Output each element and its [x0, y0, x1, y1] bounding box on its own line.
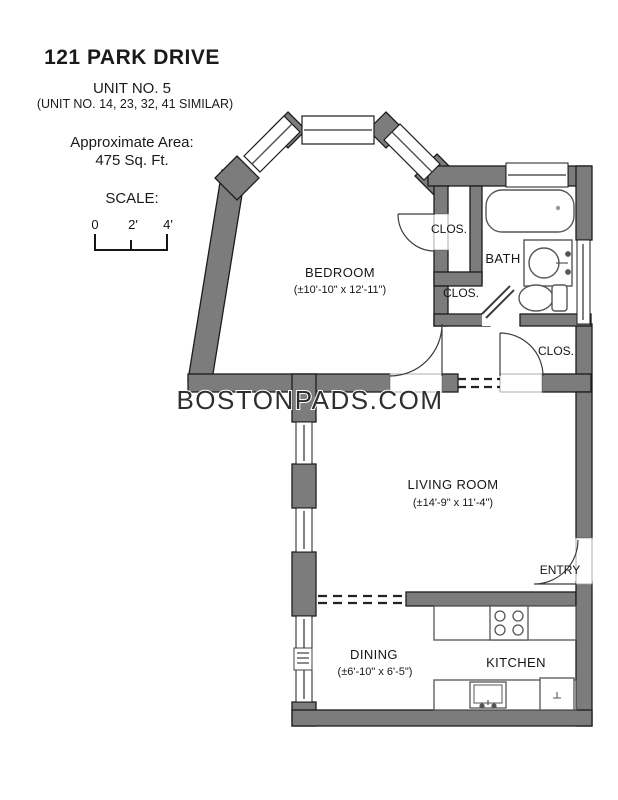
wall-closet-bottom: [542, 374, 591, 392]
closet-upper-door-arc: [398, 214, 435, 251]
wall-bottom: [292, 710, 592, 726]
closet-lower-door-arc: [500, 333, 543, 376]
dashed-opening-hall: [458, 379, 500, 387]
wall-living-left-b: [292, 464, 316, 508]
room-label-dining: DINING: [350, 647, 398, 662]
entry-door-arc: [534, 540, 578, 584]
bathtub-icon: [486, 190, 574, 232]
kitchen-sink-icon: [470, 682, 506, 708]
room-label-kitchen: KITCHEN: [486, 655, 546, 670]
bay-windows: [244, 116, 440, 180]
radiator-icon: [294, 648, 312, 670]
room-dims-living: (±14'-9" x 11'-4"): [413, 497, 493, 509]
wall-living-left-c: [292, 552, 316, 616]
toilet-icon: [519, 285, 567, 311]
wall-bedroom-left: [188, 170, 246, 380]
wall-right-living: [576, 392, 592, 538]
floorplan-drawing: 0 2' 4': [0, 0, 618, 800]
room-dims-dining: (±6'-10" x 6'-5"): [338, 666, 413, 678]
scale-bar: [94, 234, 168, 250]
room-label-bedroom: BEDROOM: [305, 265, 375, 280]
wall-kitchen-top: [406, 592, 576, 606]
room-label-closet-lower: CLOS.: [538, 344, 574, 358]
opening-entry-door: [576, 538, 592, 584]
scale-tick-2: 2': [128, 217, 138, 232]
wall-closet-divider: [434, 272, 482, 286]
bedroom-door-arc: [390, 324, 442, 376]
wall-right-kitchen: [576, 582, 592, 726]
room-label-closet-upper: CLOS.: [431, 222, 467, 236]
wall-closet-upper-right: [470, 186, 482, 284]
wall-closet-upper-left-a: [434, 186, 448, 214]
watermark-text: BOSTONPADS.COM: [176, 385, 443, 415]
stove-4-burner-icon: [490, 606, 528, 640]
opening-closet-lower-door: [500, 374, 542, 392]
room-dims-bedroom: (±10'-10" x 12'-11"): [294, 284, 386, 296]
room-label-closet-middle: CLOS.: [443, 286, 479, 300]
room-label-entry: ENTRY: [540, 563, 580, 577]
scale-tick-4: 4': [163, 217, 173, 232]
opening-bath-door: [482, 300, 510, 326]
sink-icon: [524, 240, 572, 286]
wall-bath-top-left: [428, 166, 506, 186]
floorplan-page: 121 PARK DRIVE UNIT NO. 5 (UNIT NO. 14, …: [0, 0, 618, 800]
dashed-opening-dining: [318, 596, 406, 603]
scale-tick-0: 0: [91, 217, 98, 232]
refrigerator-icon: [540, 678, 574, 710]
room-label-living: LIVING ROOM: [407, 477, 498, 492]
wall-right-upper-a: [576, 166, 592, 240]
wall-post-hall: [442, 374, 458, 392]
room-label-bath: BATH: [485, 251, 520, 266]
